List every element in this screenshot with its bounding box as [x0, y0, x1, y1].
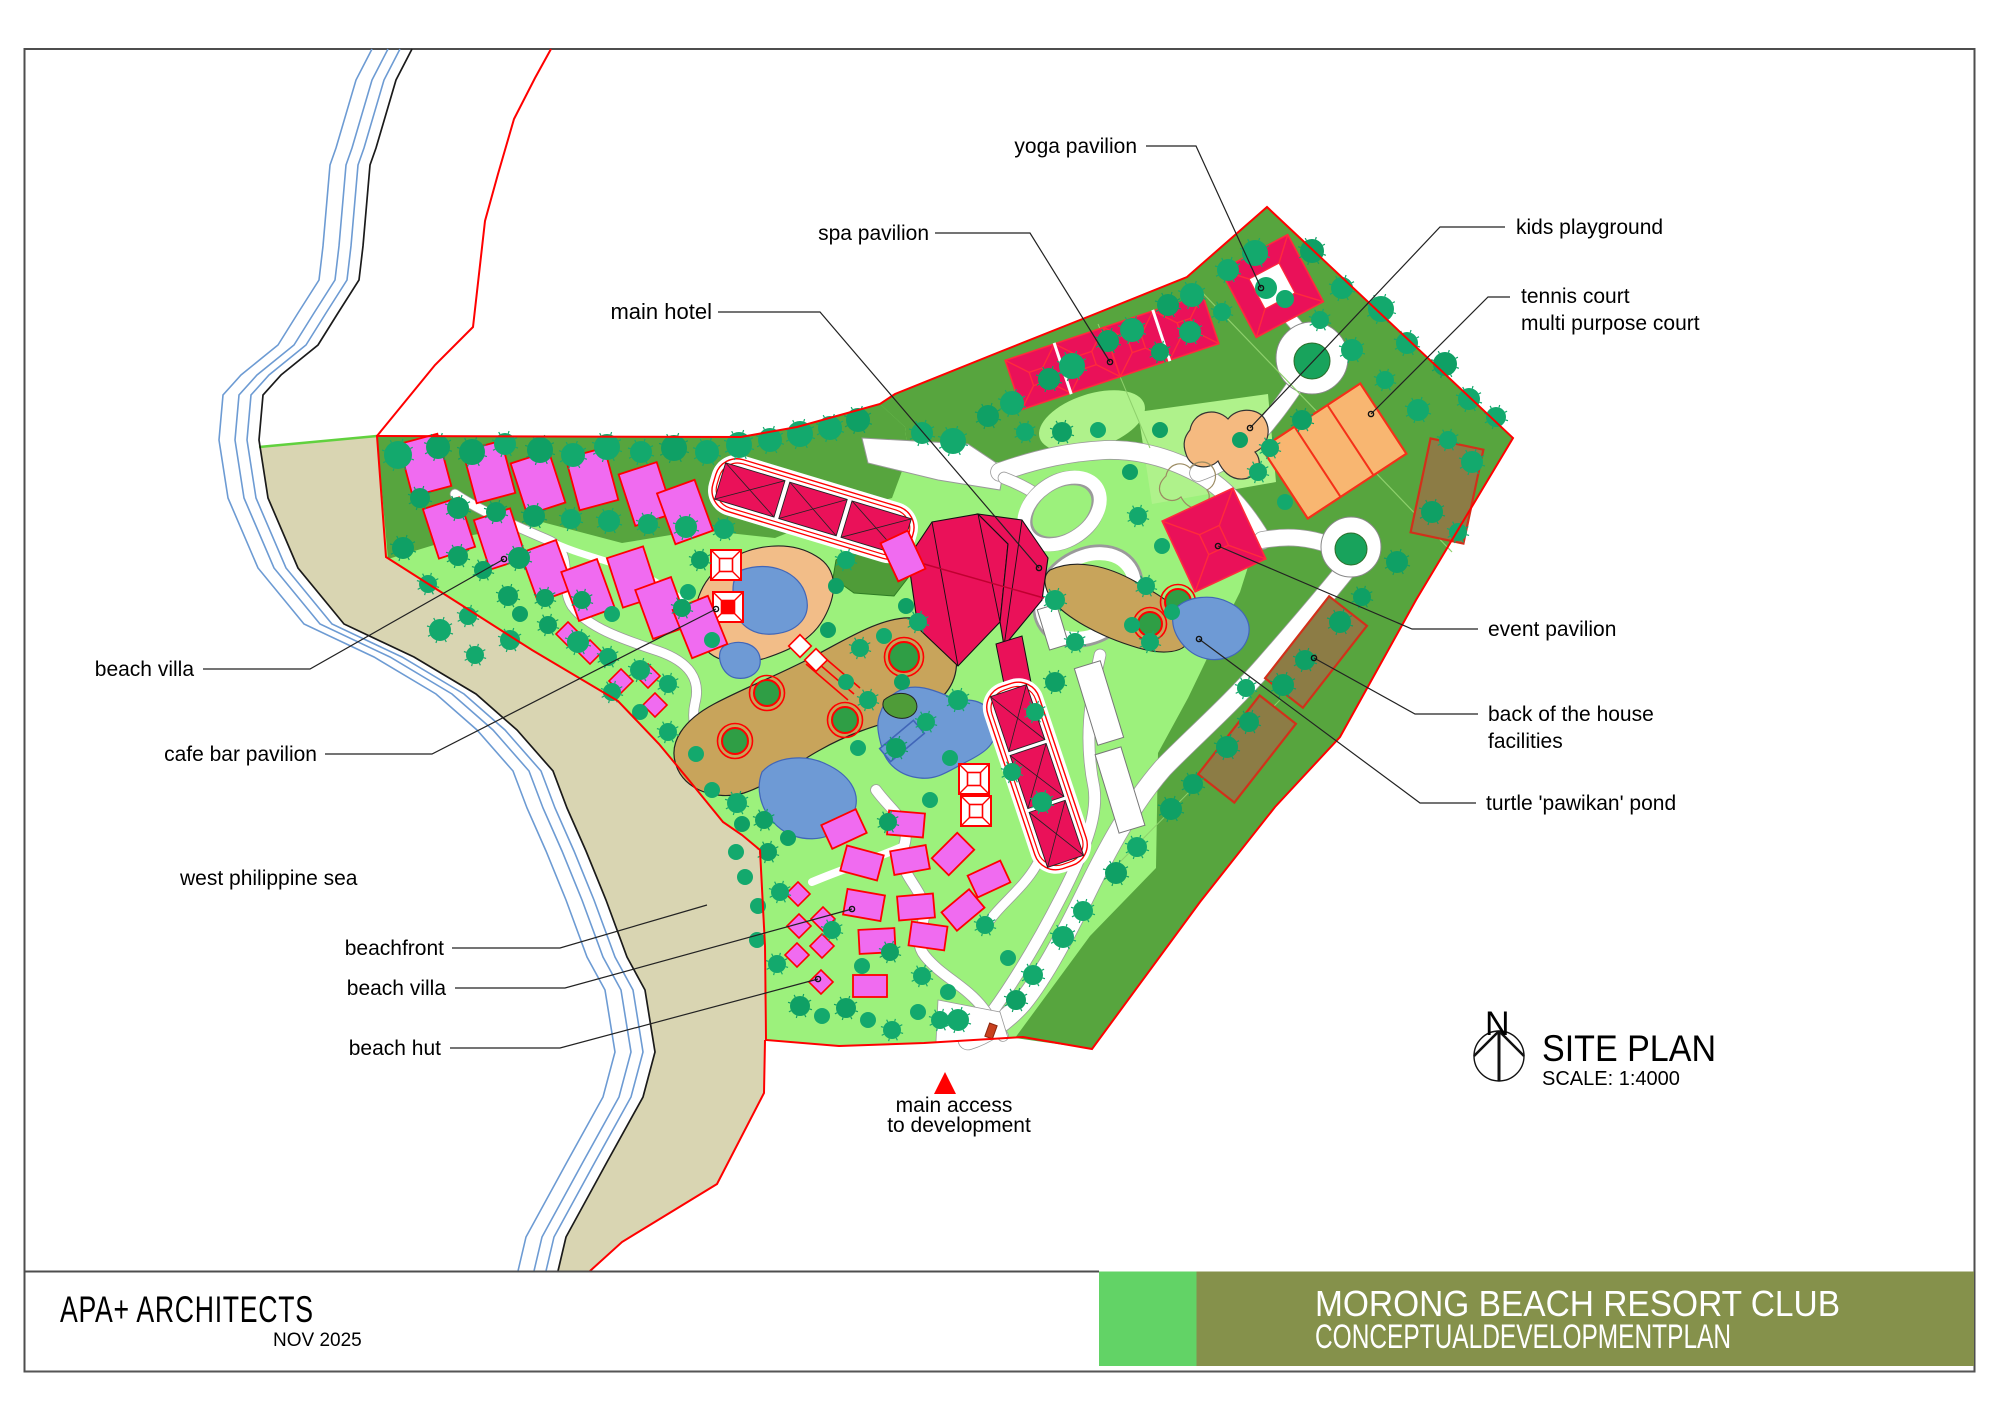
svg-text:SCALE: 1:4000: SCALE: 1:4000 [1542, 1068, 1680, 1090]
svg-text:back of the house: back of the house [1488, 703, 1654, 726]
svg-text:west philippine sea: west philippine sea [179, 867, 358, 890]
svg-text:SITE PLAN: SITE PLAN [1542, 1028, 1716, 1070]
svg-text:to development: to development [887, 1114, 1031, 1137]
svg-text:cafe bar pavilion: cafe bar pavilion [164, 743, 317, 766]
svg-text:turtle 'pawikan' pond: turtle 'pawikan' pond [1486, 792, 1676, 815]
svg-text:NOV 2025: NOV 2025 [273, 1330, 362, 1351]
svg-text:N: N [1485, 1005, 1510, 1043]
svg-text:beach hut: beach hut [349, 1037, 441, 1060]
svg-text:yoga pavilion: yoga pavilion [1014, 135, 1137, 158]
svg-text:beach villa: beach villa [95, 658, 195, 681]
svg-text:facilities: facilities [1488, 730, 1563, 753]
svg-text:beach villa: beach villa [347, 977, 447, 1000]
svg-text:multi purpose court: multi purpose court [1521, 312, 1700, 335]
svg-text:CONCEPTUALDEVELOPMENTPLAN: CONCEPTUALDEVELOPMENTPLAN [1315, 1318, 1731, 1356]
svg-text:beachfront: beachfront [345, 937, 444, 960]
svg-text:kids playground: kids playground [1516, 216, 1663, 239]
svg-text:spa pavilion: spa pavilion [818, 222, 929, 245]
svg-text:tennis court: tennis court [1521, 285, 1630, 308]
svg-text:APA+ ARCHITECTS: APA+ ARCHITECTS [60, 1289, 314, 1330]
svg-text:main hotel: main hotel [610, 299, 712, 324]
svg-text:event pavilion: event pavilion [1488, 618, 1616, 641]
